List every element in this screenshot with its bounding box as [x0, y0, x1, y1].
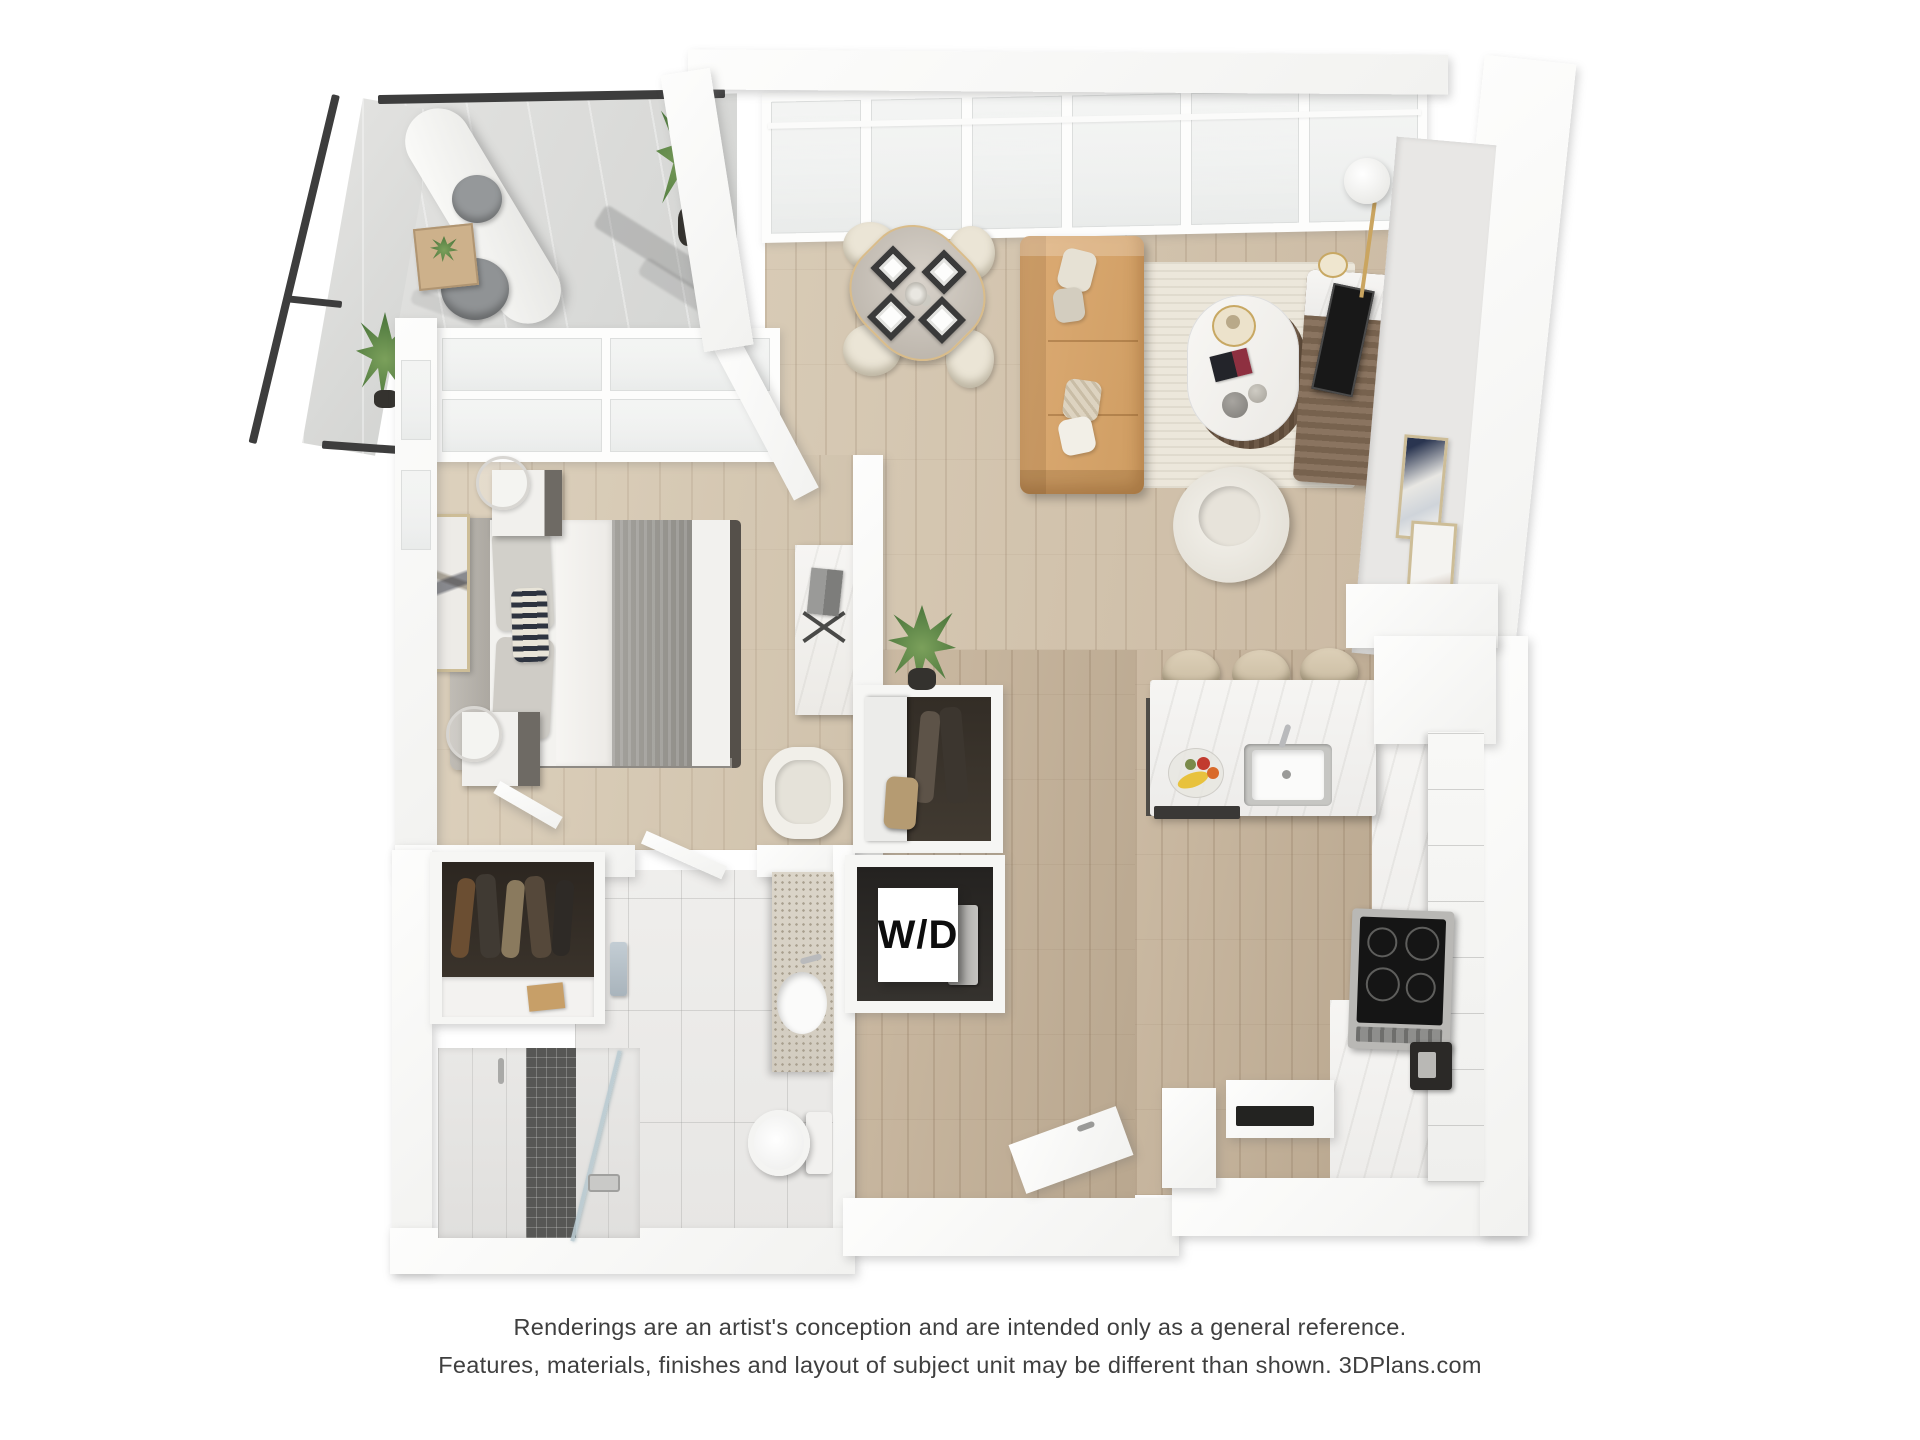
floor-plan-page: W/D	[0, 0, 1920, 1440]
counter-appliance	[1236, 1106, 1314, 1126]
entry-door-handle	[1076, 1121, 1095, 1133]
sink-drain	[1282, 770, 1291, 779]
grapes	[1185, 759, 1196, 770]
disclaimer: Renderings are an artist's conception an…	[0, 1308, 1920, 1384]
entry-wall-stub	[1162, 1088, 1216, 1188]
banana	[1176, 768, 1211, 792]
coffee-machine-front	[1418, 1052, 1436, 1078]
coffee-machine	[1410, 1042, 1452, 1090]
dishwasher-front	[1154, 806, 1240, 819]
range	[1348, 908, 1455, 1051]
island-sink	[1244, 744, 1332, 806]
disclaimer-line-1: Renderings are an artist's conception an…	[0, 1308, 1920, 1346]
floor-plan-rendering: W/D	[0, 0, 1920, 1440]
fruit-bowl	[1168, 748, 1224, 798]
disclaimer-line-2: Features, materials, finishes and layout…	[0, 1346, 1920, 1384]
apple	[1207, 767, 1219, 779]
kitchen	[0, 0, 1920, 1440]
kitchen-pantry-block	[1374, 636, 1496, 744]
